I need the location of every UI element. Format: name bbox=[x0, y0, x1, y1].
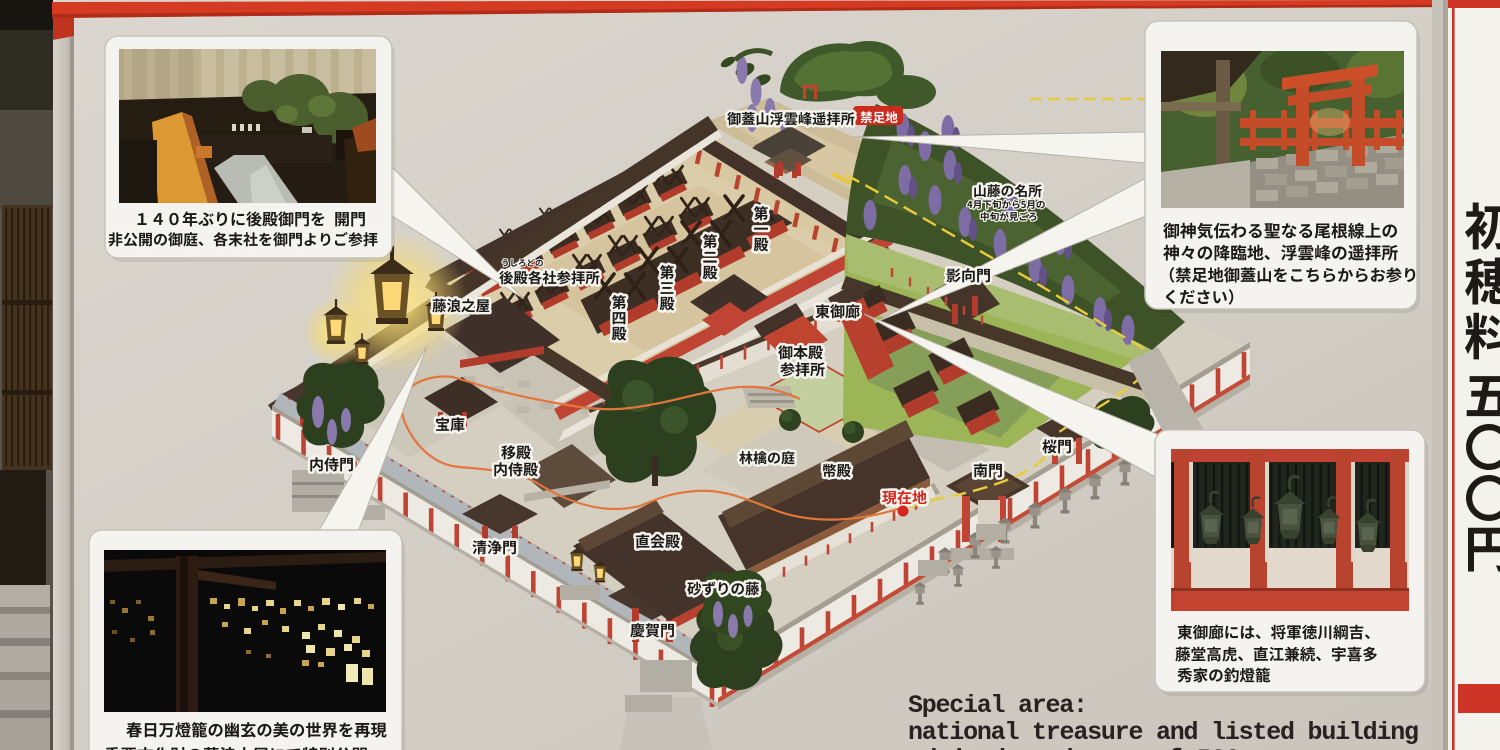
svg-text:national treasure and listed b: national treasure and listed building bbox=[908, 718, 1419, 747]
svg-text:admission charge of 500 yen: admission charge of 500 yen bbox=[908, 745, 1298, 750]
svg-text:Special area:: Special area: bbox=[908, 691, 1088, 720]
